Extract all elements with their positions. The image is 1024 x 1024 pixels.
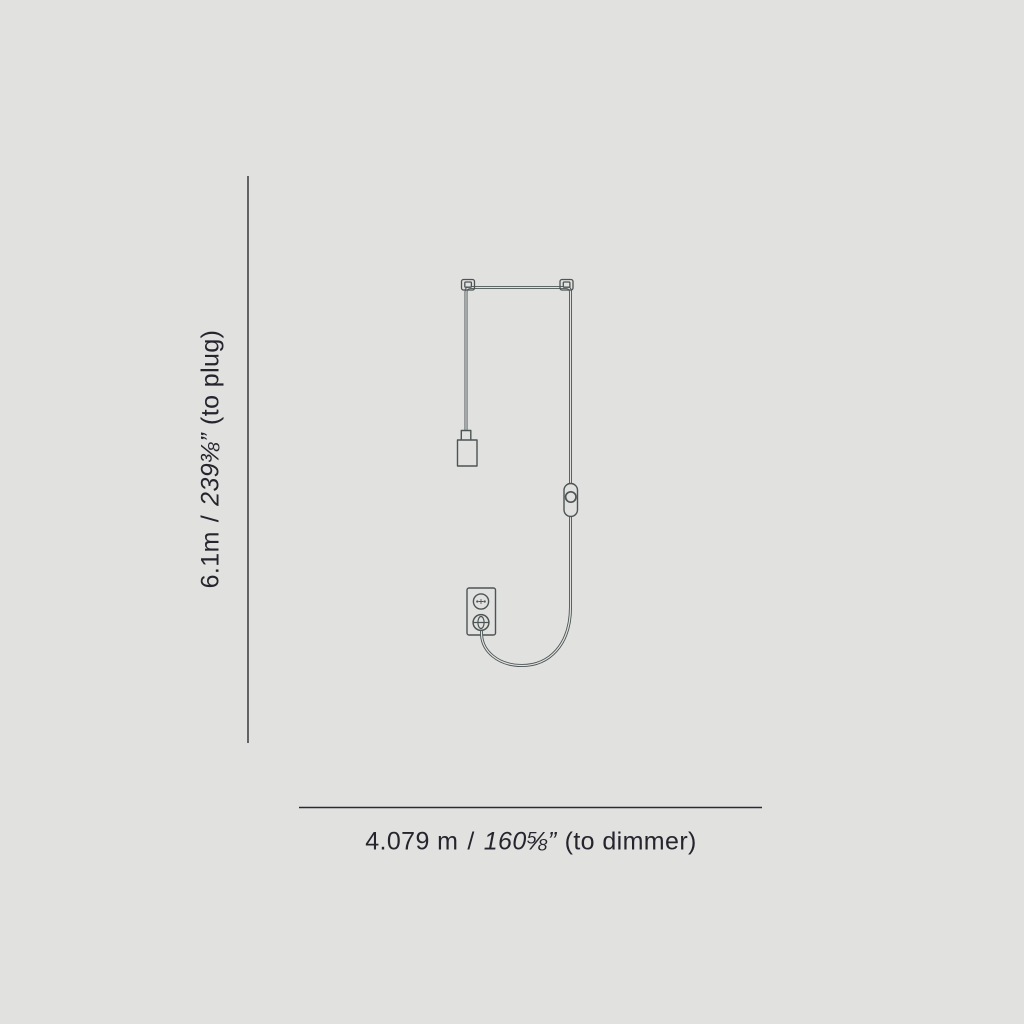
vertical-metric-value: 6.1m [197, 531, 225, 588]
vertical-suffix: (to plug) [197, 330, 225, 425]
horizontal-dimension-label: 4.079 m/160⅝”(to dimmer) [365, 828, 697, 857]
horizontal-imperial-value: 160⅝” [484, 828, 557, 856]
horizontal-separator: / [467, 828, 474, 856]
pendant-lamp-line-drawing [0, 0, 1024, 1024]
power-plug [473, 615, 489, 631]
diagram-canvas: 6.1m/239⅜”(to plug) 4.079 m/160⅝”(to dim… [0, 0, 1024, 1024]
socket-body [458, 440, 478, 466]
horizontal-metric-value: 4.079 m [365, 828, 458, 856]
vertical-dimension-label: 6.1m/239⅜”(to plug) [197, 330, 226, 589]
cord-upper-run-inner [466, 288, 571, 485]
dimension-lines [248, 176, 762, 808]
cord-upper-run [466, 288, 571, 485]
bulb-socket [458, 431, 478, 467]
vertical-separator: / [197, 515, 225, 522]
vertical-imperial-value: 239⅜” [197, 433, 225, 506]
horizontal-suffix: (to dimmer) [565, 828, 697, 856]
socket-ferrule [461, 431, 471, 441]
inline-dimmer [564, 484, 578, 517]
lamp-drawing [458, 280, 578, 666]
